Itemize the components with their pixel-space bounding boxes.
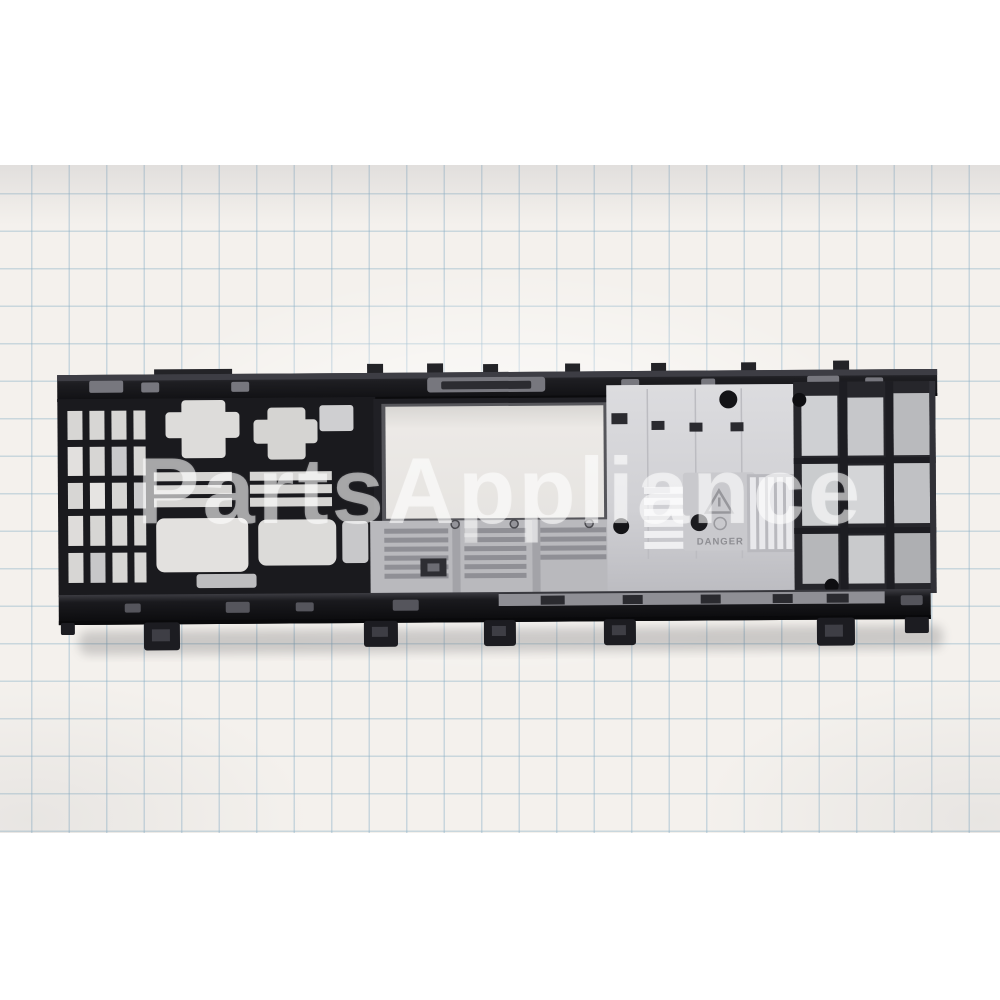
left-lattice-section: [57, 397, 376, 597]
center-display-window: [373, 397, 616, 527]
silver-panel-section: DANGER: [606, 384, 794, 593]
panel-frame-part: DANGER: [57, 360, 943, 655]
round-hole: [613, 518, 629, 534]
lower-louver-deck: [370, 519, 617, 595]
vertical-rib-comb: [747, 474, 795, 552]
part-illustration: DANGER: [0, 0, 1000, 1000]
product-photo-canvas: DANGER: [0, 0, 1000, 1000]
label-hole: [691, 514, 708, 531]
round-hole: [719, 390, 737, 408]
danger-label-text: DANGER: [697, 536, 744, 547]
danger-label: DANGER: [683, 472, 756, 551]
round-hole: [792, 393, 806, 407]
bottom-rail: [59, 589, 931, 625]
right-frame-section: [792, 381, 936, 594]
right-frame-openings: [801, 393, 930, 584]
